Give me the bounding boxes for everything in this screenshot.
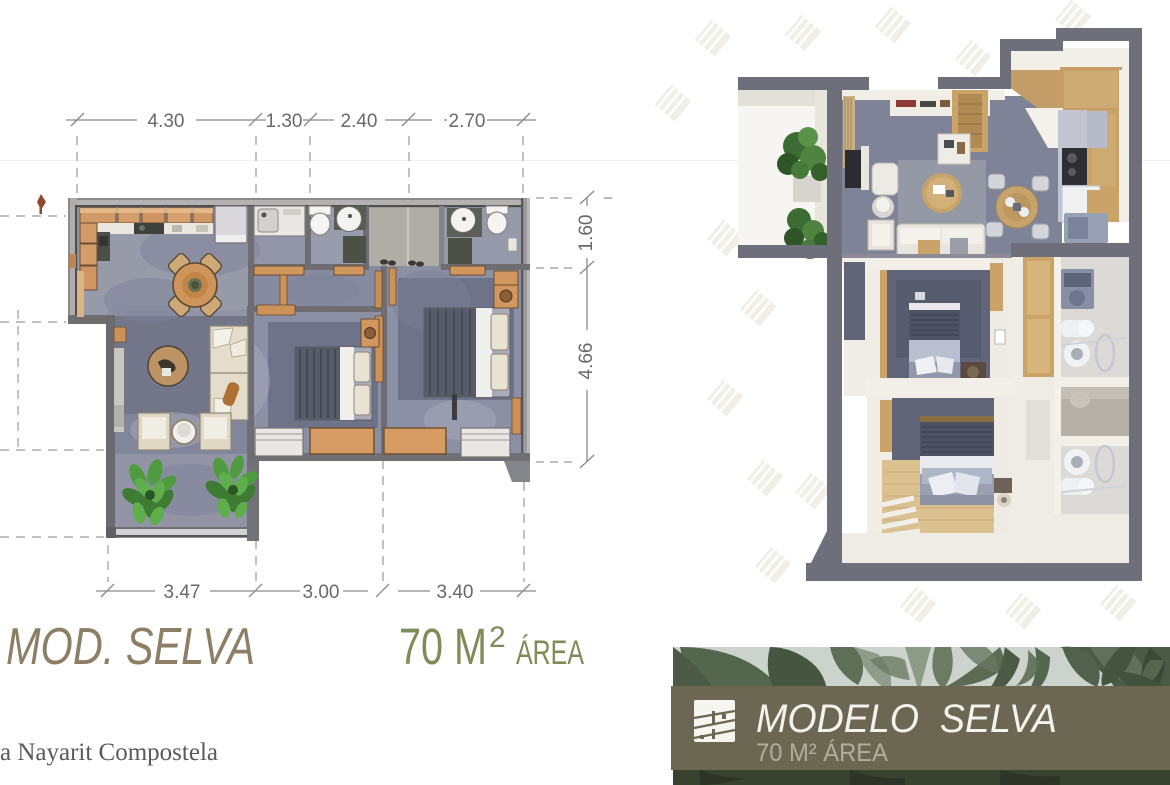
svg-text:a Nayarit Compostela: a Nayarit Compostela	[0, 739, 218, 766]
svg-text:2.40: 2.40	[341, 111, 378, 132]
svg-text:MODELO SELVA: MODELO SELVA	[756, 697, 1057, 741]
svg-text:2: 2	[489, 621, 506, 654]
svg-text:MOD. SELVA: MOD. SELVA	[6, 618, 255, 676]
svg-text:70 M: 70 M	[399, 618, 487, 675]
svg-text:1.30: 1.30	[266, 111, 303, 132]
svg-text:3.40: 3.40	[437, 582, 474, 603]
svg-text:3.00: 3.00	[303, 582, 340, 603]
svg-text:70 M² ÁREA: 70 M² ÁREA	[756, 738, 888, 767]
svg-text:3.47: 3.47	[164, 582, 201, 603]
svg-text:2.70: 2.70	[449, 111, 486, 132]
svg-text:ÁREA: ÁREA	[516, 634, 584, 672]
svg-text:1.60: 1.60	[576, 215, 597, 252]
svg-text:4.66: 4.66	[576, 343, 597, 380]
svg-text:4.30: 4.30	[148, 111, 185, 132]
